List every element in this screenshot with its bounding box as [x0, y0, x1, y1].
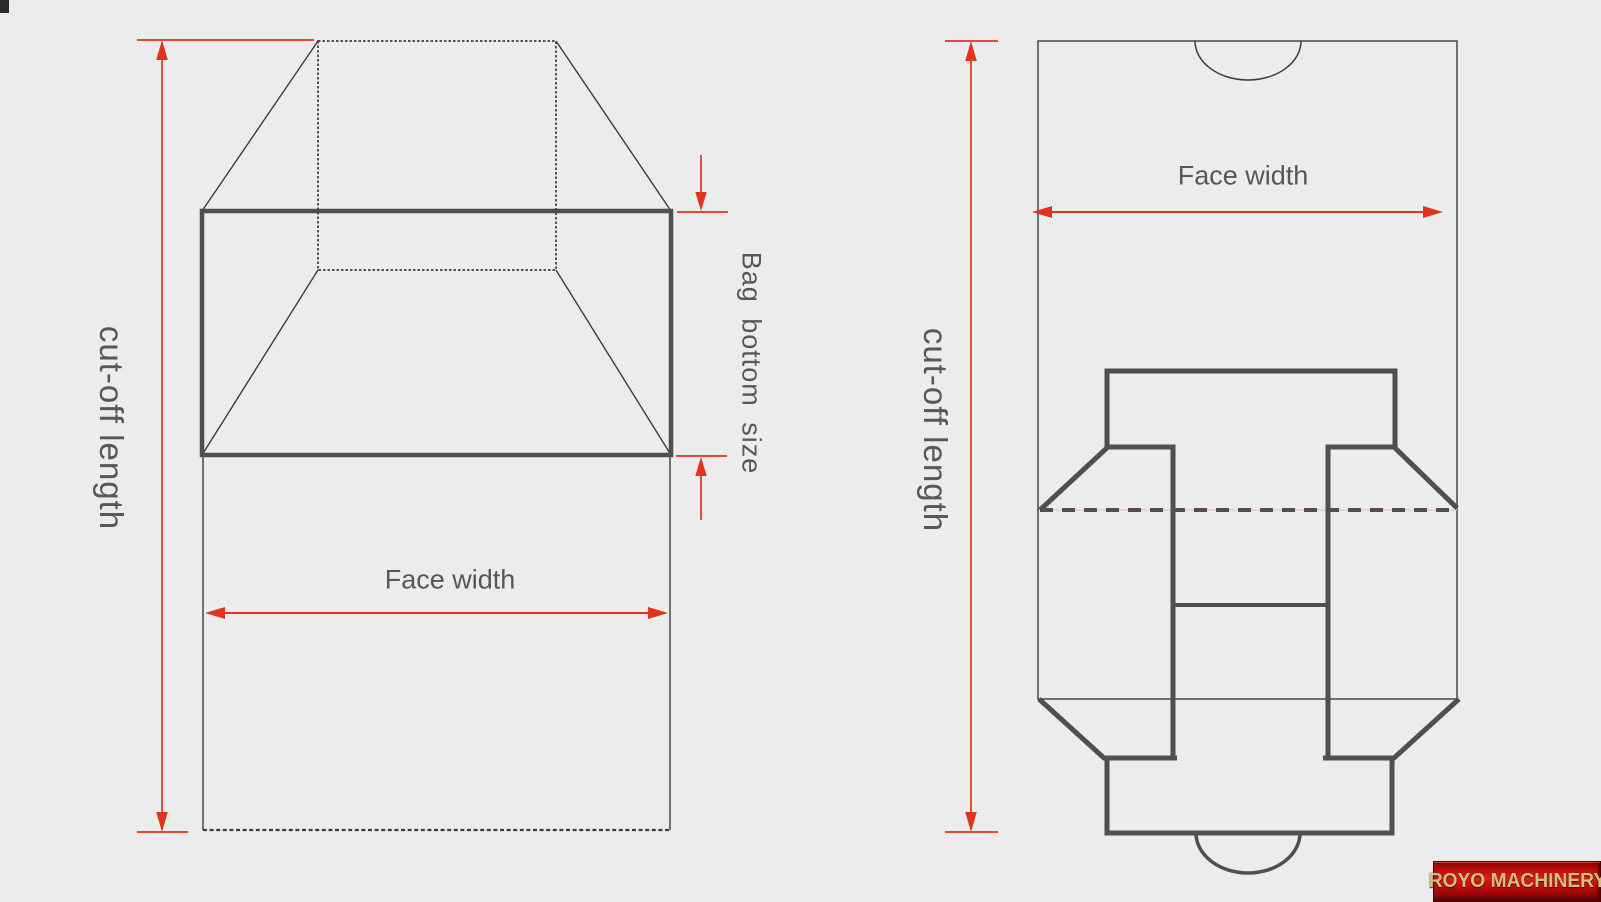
bag-bottom-size-label: Bag bottom size	[736, 252, 767, 475]
arrow-down	[695, 192, 706, 211]
bag-bottom-panel-outline	[202, 211, 671, 455]
thumb-notch-top	[1195, 41, 1301, 80]
left-face-width-label: Face width	[385, 565, 516, 596]
left-cut-off-length-label: cut-off length	[92, 326, 130, 530]
pattern-right-step	[1328, 447, 1397, 758]
diagram-canvas: cut-off length Face width Bag bottom siz…	[0, 0, 1601, 902]
arrow-down	[156, 812, 168, 832]
screen-edge-artifact	[0, 0, 9, 13]
thumb-notch-bottom	[1196, 833, 1300, 873]
pattern-top	[1107, 371, 1395, 449]
face-panel-sides	[203, 455, 670, 830]
face-width-dimension	[1032, 206, 1443, 218]
top-flap-serrated-rect	[318, 41, 556, 270]
arrow-up	[965, 41, 977, 61]
pattern-left-step	[1105, 447, 1173, 758]
gusset-fold-lines	[202, 41, 671, 455]
royo-machinery-logo-text: ROYO MACHINERY	[1428, 870, 1601, 893]
right-cut-off-length-label: cut-off length	[916, 328, 954, 532]
bag-dimension-drawing	[0, 0, 1601, 902]
bottom-fold-pattern	[1039, 371, 1459, 833]
arrow-right	[1423, 206, 1443, 218]
right-face-width-label: Face width	[1178, 161, 1309, 192]
pattern-right-diagonal	[1393, 446, 1457, 508]
face-width-dimension	[205, 607, 668, 619]
bag-bottom-size-dimension	[676, 155, 728, 520]
arrow-up	[156, 40, 168, 60]
arrow-down	[965, 812, 977, 832]
pattern-bottom-left	[1039, 699, 1177, 758]
cut-off-length-dimension	[137, 40, 314, 832]
arrow-left	[1032, 206, 1052, 218]
pattern-bottom-right	[1323, 699, 1459, 758]
arrow-right	[648, 607, 668, 619]
arrow-up	[695, 457, 706, 476]
arrow-left	[205, 607, 225, 619]
left-bag-diagram	[137, 40, 728, 832]
royo-machinery-logo: ROYO MACHINERY	[1433, 861, 1601, 902]
bottom-flap	[1107, 756, 1392, 833]
pattern-left-diagonal	[1040, 446, 1109, 510]
